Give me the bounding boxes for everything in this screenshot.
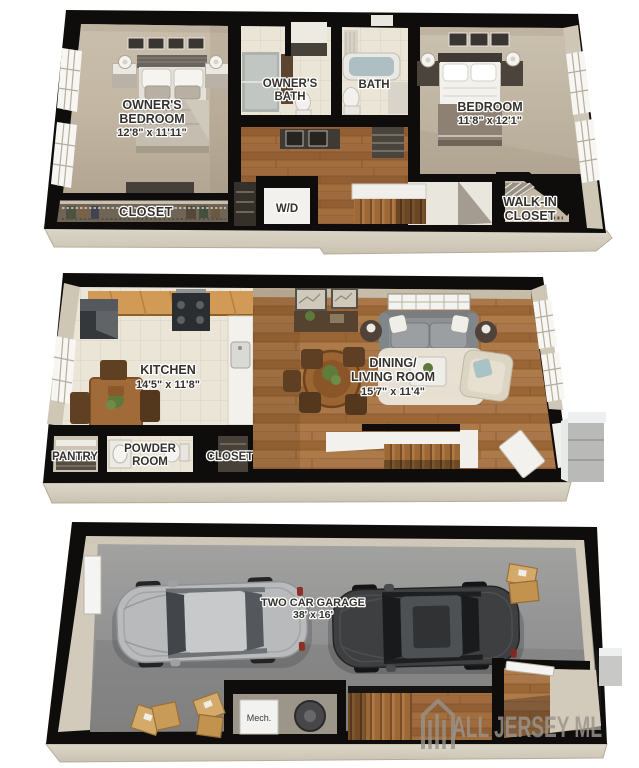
svg-text:12'8" x 11'11": 12'8" x 11'11" [117,127,187,139]
svg-text:CLOSET: CLOSET [119,205,173,219]
svg-text:BATH: BATH [274,91,305,103]
svg-text:TWO CAR GARAGE: TWO CAR GARAGE [261,597,365,609]
svg-text:DINING/: DINING/ [369,356,417,370]
svg-text:11'8" x 12'1": 11'8" x 12'1" [458,115,522,127]
svg-text:WALK-IN: WALK-IN [503,195,556,209]
svg-text:OWNER'S: OWNER'S [122,98,181,112]
svg-text:W/D: W/D [276,203,298,215]
svg-text:BEDROOM: BEDROOM [119,112,184,126]
svg-text:POWDER: POWDER [124,443,176,455]
svg-text:ROOM: ROOM [132,456,168,468]
svg-text:ALL JERSEY ML: ALL JERSEY ML [452,711,602,744]
svg-text:14'5" x 11'8": 14'5" x 11'8" [136,379,200,391]
svg-text:OWNER'S: OWNER'S [263,78,318,90]
svg-text:CLOSET: CLOSET [505,209,556,223]
svg-text:BATH: BATH [358,79,389,91]
svg-text:38' x 16': 38' x 16' [293,609,333,621]
svg-text:BEDROOM: BEDROOM [457,100,522,114]
svg-text:15'7" x 11'4": 15'7" x 11'4" [361,386,425,398]
svg-text:KITCHEN: KITCHEN [140,363,196,377]
svg-text:PANTRY: PANTRY [52,451,98,463]
svg-text:CLOSET: CLOSET [207,451,254,463]
svg-text:Mech.: Mech. [247,713,272,723]
svg-text:LIVING ROOM: LIVING ROOM [351,370,435,384]
